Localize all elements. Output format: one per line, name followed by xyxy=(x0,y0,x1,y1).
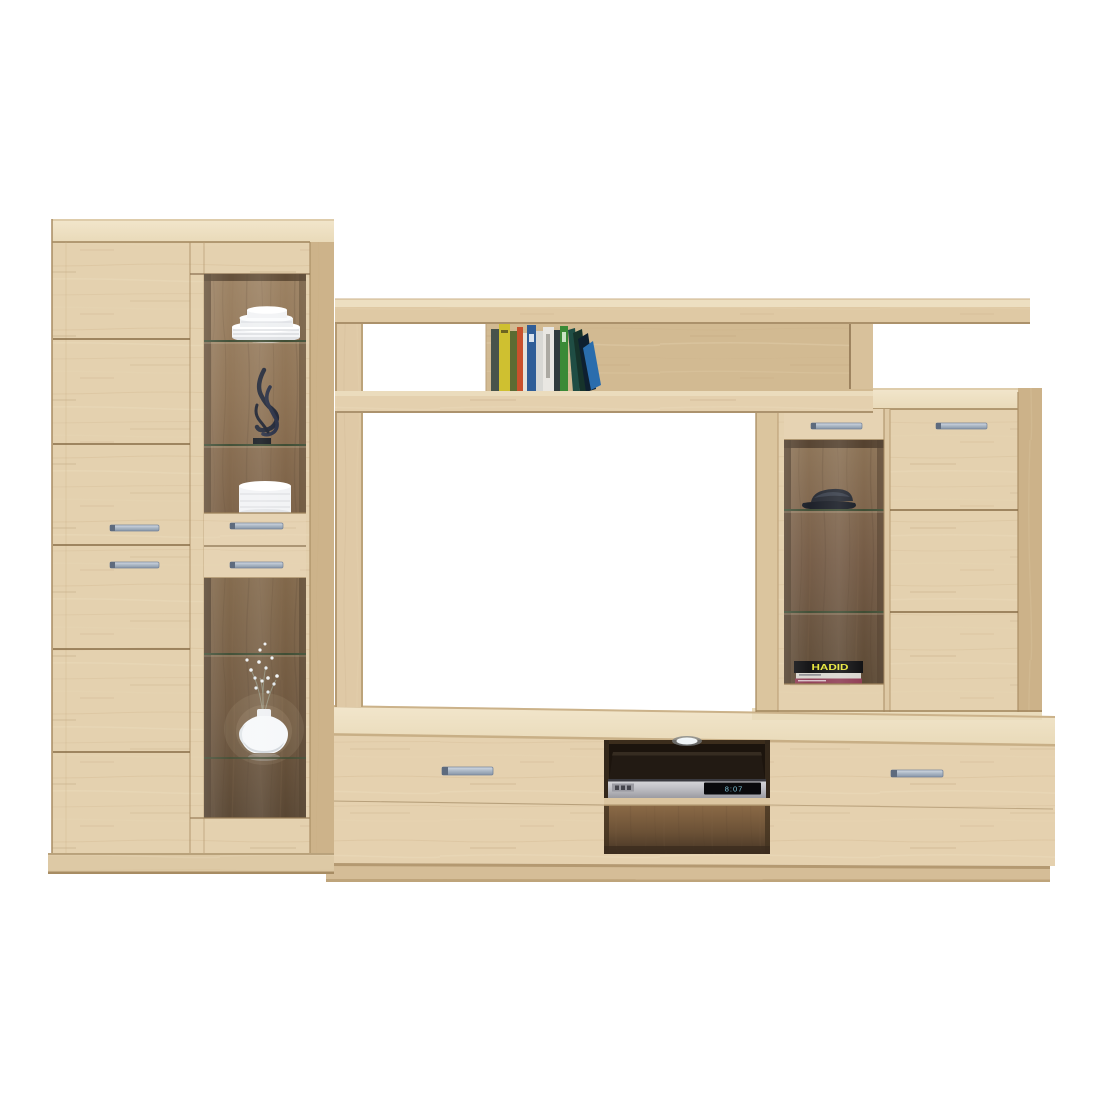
svg-text:8:07: 8:07 xyxy=(725,785,744,794)
